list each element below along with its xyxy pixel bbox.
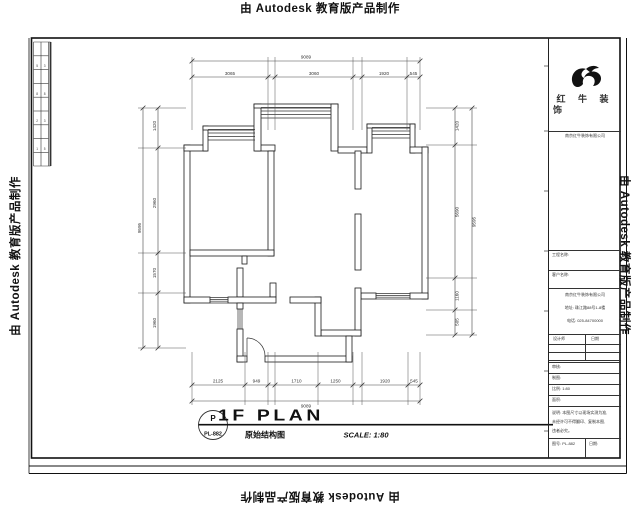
row-area: 面积: — [552, 397, 561, 402]
scale-label: SCALE: 1:80 — [343, 431, 389, 440]
svg-text:1420: 1420 — [455, 120, 460, 131]
svg-text:505: 505 — [455, 318, 460, 326]
sheet-number-cell: 图号: PL-882 — [552, 441, 575, 446]
client-name-row: 客户名称: — [552, 272, 569, 277]
drawing-sheet: 由 Autodesk 教育版产品制作 由 Autodesk 教育版产品制作 由 … — [0, 0, 640, 512]
svg-text:949: 949 — [253, 379, 261, 384]
sheet-date-cell: 日期: — [589, 441, 598, 446]
table-header-date: 日期 — [591, 336, 599, 341]
plan-title: 1F PLAN — [218, 408, 324, 425]
notes-line-1: 说明: 本图尺寸以现场实测为准, — [552, 410, 607, 415]
company-line-1: 南京红牛装饰有限公司 — [549, 292, 621, 297]
svg-text:9089: 9089 — [301, 55, 312, 60]
svg-text:3: 3 — [44, 64, 46, 68]
title-block: 红 牛 装 饰 南京红牛装饰有限公司 工程名称: 客户名称: 南京红牛装饰有限公… — [548, 38, 621, 458]
svg-text:1420: 1420 — [152, 120, 157, 131]
svg-text:8: 8 — [36, 92, 38, 96]
tag-number: PL-882 — [204, 432, 222, 438]
bull-logo-icon — [566, 62, 606, 96]
row-check: 审核: — [552, 364, 561, 369]
svg-text:5: 5 — [36, 64, 38, 68]
brand-name-line2: 饰 — [553, 103, 562, 116]
svg-text:1920: 1920 — [380, 379, 391, 384]
svg-text:5690: 5690 — [455, 206, 460, 217]
svg-text:545: 545 — [410, 71, 418, 76]
svg-text:1710: 1710 — [291, 379, 302, 384]
svg-text:2: 2 — [36, 119, 38, 123]
svg-text:1160: 1160 — [455, 291, 460, 301]
company-line-3: 电话: 025-84700000 — [549, 318, 621, 323]
table-header-designer: 设计师 — [553, 336, 565, 341]
revision-strip: 5 3 8 8 2 3 1 5 — [34, 42, 51, 166]
company-line-2: 地址: 珠江路88号1-8楼 — [549, 305, 621, 310]
project-name-row: 工程名称: — [552, 252, 569, 257]
svg-text:1: 1 — [36, 147, 38, 151]
tag-letter: P — [210, 414, 216, 423]
notes-line-3: 违者必究。 — [552, 428, 572, 433]
brand-subtitle: 南京红牛装饰有限公司 — [549, 133, 621, 138]
svg-text:1960: 1960 — [152, 317, 157, 328]
svg-text:1250: 1250 — [330, 379, 341, 384]
floor-plan-canvas: 5 3 8 8 2 3 1 5 — [0, 0, 640, 512]
svg-text:2960: 2960 — [152, 197, 157, 208]
plan-title-strip: P PL-882 1F PLAN 原始结构图 SCALE: 1:80 — [199, 408, 554, 440]
svg-text:9595: 9595 — [472, 216, 477, 227]
svg-text:1570: 1570 — [152, 267, 157, 278]
svg-text:9595: 9595 — [137, 222, 142, 233]
svg-text:3065: 3065 — [225, 71, 236, 76]
svg-text:3060: 3060 — [309, 71, 320, 76]
svg-text:545: 545 — [410, 379, 418, 384]
svg-text:3: 3 — [44, 119, 46, 123]
sheet-frame — [29, 38, 627, 474]
svg-text:1920: 1920 — [379, 71, 390, 76]
notes-line-2: 未经许可不得翻印、复制本图, — [552, 419, 605, 424]
svg-text:5: 5 — [44, 147, 46, 151]
svg-text:8: 8 — [44, 92, 46, 96]
row-scale: 比例: 1:80 — [552, 386, 570, 391]
floor-plan-walls — [184, 104, 428, 362]
row-draw: 制图: — [552, 375, 561, 380]
svg-text:2125: 2125 — [213, 379, 224, 384]
door-swing — [247, 338, 265, 356]
drawing-name: 原始结构图 — [245, 430, 285, 440]
